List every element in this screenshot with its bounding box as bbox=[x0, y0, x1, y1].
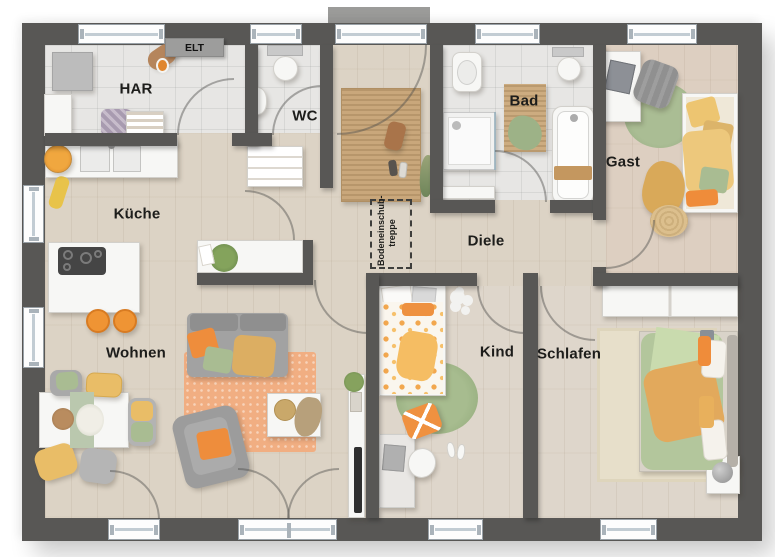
window-kueche bbox=[23, 185, 44, 243]
schlafen-pillow-orange-1 bbox=[698, 336, 711, 366]
wall-bad-gast bbox=[593, 45, 606, 220]
wc-toilet-tank bbox=[267, 45, 303, 56]
french-doors bbox=[238, 519, 337, 540]
bad-toilet-bowl bbox=[557, 57, 581, 81]
wall-kind-schlafen bbox=[523, 273, 538, 518]
elt-label: ELT bbox=[185, 42, 204, 54]
wall-har-wc bbox=[245, 45, 258, 146]
iron bbox=[156, 58, 169, 73]
burner-1 bbox=[63, 250, 73, 260]
wall-kind-west bbox=[366, 273, 379, 518]
bad-sink-basin bbox=[457, 60, 477, 85]
shoe-cabinet bbox=[247, 146, 303, 187]
wardrobe bbox=[602, 283, 738, 317]
entrance-door bbox=[335, 24, 427, 44]
fruit-bowl bbox=[44, 145, 72, 173]
flower-vase bbox=[76, 404, 104, 436]
label-kueche: Küche bbox=[114, 206, 161, 223]
coffee-tray bbox=[274, 399, 296, 421]
nightstand-lamp bbox=[712, 462, 733, 483]
kitchen-sink-2 bbox=[113, 146, 141, 172]
label-kind: Kind bbox=[480, 344, 514, 361]
wall-har-wc-bottom bbox=[232, 133, 272, 146]
bar-stool-2 bbox=[113, 309, 137, 333]
shoe-right bbox=[398, 162, 408, 179]
lowboard-books bbox=[350, 392, 362, 412]
wc-toilet-bowl bbox=[273, 56, 298, 81]
flower-stool bbox=[450, 290, 465, 305]
attic-ladder-label: Bodeneinschub- treppe bbox=[376, 200, 402, 266]
washing-machine bbox=[44, 94, 72, 136]
window-gast bbox=[627, 24, 697, 44]
dining-chair-green-cushion bbox=[55, 371, 78, 391]
burner-3 bbox=[63, 263, 71, 271]
window-kind bbox=[428, 519, 483, 540]
window-har bbox=[78, 24, 165, 44]
gast-pillow-orange bbox=[685, 189, 718, 207]
wall-wc-right bbox=[320, 45, 333, 188]
floorplan-canvas: ELT Bodeneinschub- treppe bbox=[0, 0, 775, 557]
wall-bad-left bbox=[430, 45, 443, 200]
label-gast: Gast bbox=[606, 154, 640, 171]
dining-chair-right-yellow bbox=[131, 401, 153, 421]
burner-4 bbox=[94, 250, 102, 258]
tv-screen bbox=[354, 447, 362, 513]
bar-stool-1 bbox=[86, 309, 110, 333]
wall-bad-bottom-right bbox=[550, 200, 597, 213]
sofa-back-cushion-2 bbox=[240, 314, 286, 331]
label-schlafen: Schlafen bbox=[537, 346, 601, 363]
bathtub-inner bbox=[557, 111, 589, 199]
sofa-blanket-mustard bbox=[231, 334, 276, 378]
attic-ladder-line1: Bodeneinschub- bbox=[376, 200, 387, 266]
window-wc bbox=[250, 24, 302, 44]
wall-kind-top bbox=[366, 273, 477, 286]
bath-faucet bbox=[570, 114, 578, 122]
decor-plate bbox=[52, 408, 74, 430]
bath-caddy bbox=[554, 166, 592, 180]
gast-pouf bbox=[650, 205, 688, 237]
attic-ladder-line2: treppe bbox=[387, 200, 398, 266]
wall-gast-schlafen bbox=[593, 273, 738, 286]
schlafen-headboard bbox=[727, 335, 738, 467]
kind-pillow-orange bbox=[402, 303, 434, 316]
burner-2 bbox=[80, 252, 92, 264]
label-bad: Bad bbox=[510, 93, 539, 110]
dining-chair-right-green bbox=[131, 422, 153, 442]
wall-bad-bottom-left bbox=[430, 200, 495, 213]
kitchen-sink bbox=[80, 146, 110, 172]
bad-toilet-tank bbox=[552, 47, 584, 57]
wall-har-bottom bbox=[45, 133, 177, 146]
shower-drain bbox=[452, 121, 461, 130]
schlafen-pillow-orange-2 bbox=[699, 396, 714, 428]
window-bad bbox=[475, 24, 540, 44]
terrace-door bbox=[108, 519, 160, 540]
label-wc: WC bbox=[292, 108, 317, 125]
sofa-pillow-green bbox=[202, 346, 234, 374]
label-wohnen: Wohnen bbox=[106, 345, 166, 362]
entrance-stoop bbox=[328, 7, 430, 24]
kind-desk-laptop bbox=[382, 444, 406, 472]
bad-bench bbox=[437, 186, 495, 199]
sofa-back-cushion-1 bbox=[190, 314, 238, 331]
french-door-divider bbox=[287, 523, 291, 538]
lowboard-plant bbox=[344, 372, 364, 392]
label-har: HAR bbox=[119, 81, 152, 98]
har-appliance-box bbox=[52, 52, 93, 91]
window-wohnen bbox=[23, 307, 44, 368]
label-diele: Diele bbox=[468, 233, 505, 250]
elt-panel: ELT bbox=[165, 38, 224, 57]
window-schlafen bbox=[600, 519, 657, 540]
sideboard-plant bbox=[210, 244, 238, 272]
armchair-pillow-orange bbox=[196, 427, 232, 460]
